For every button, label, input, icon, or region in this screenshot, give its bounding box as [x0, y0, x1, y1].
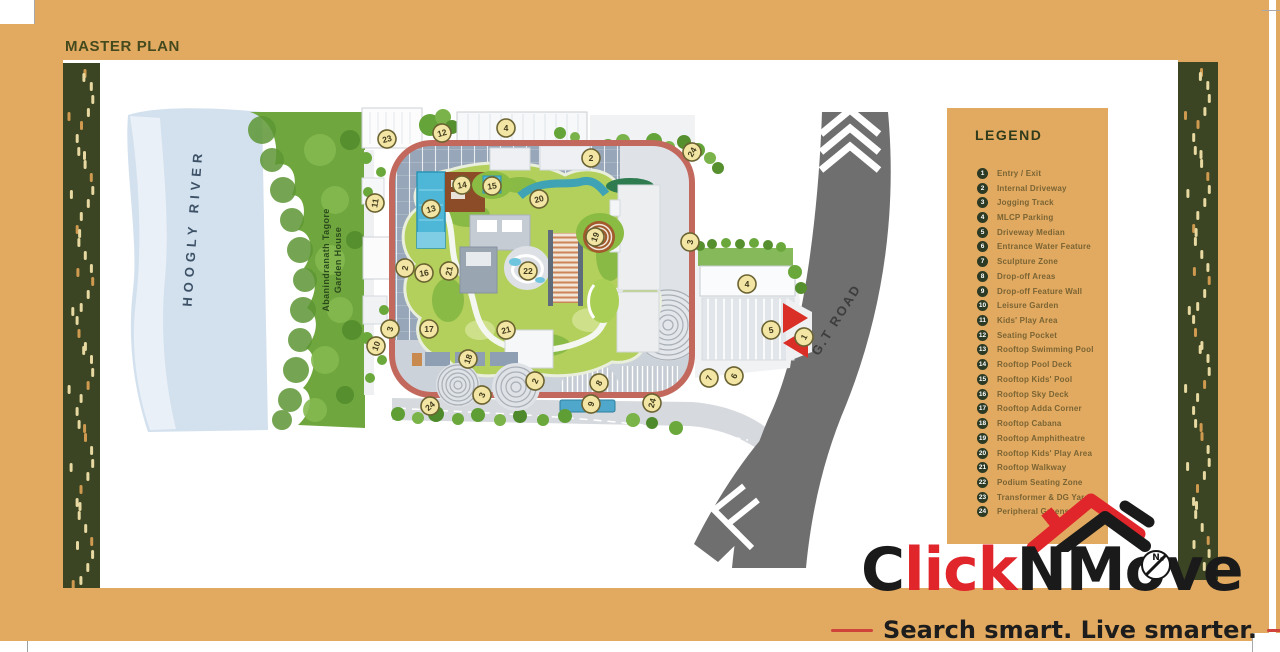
legend-item: 2Internal Driveway: [977, 181, 1104, 196]
legend-item-label: Rooftop Sky Deck: [997, 390, 1069, 399]
legend-item-label: Podium Seating Zone: [997, 478, 1083, 487]
logo-part-c: C: [861, 535, 904, 605]
legend-item: 9Drop-off Feature Wall: [977, 284, 1104, 299]
legend-item: 19Rooftop Amphitheatre: [977, 431, 1104, 446]
tree-dashes-icon: [63, 63, 100, 588]
legend-item: 5Driveway Median: [977, 225, 1104, 240]
legend-item-number: 10: [977, 300, 988, 311]
legend-item-label: Drop-off Feature Wall: [997, 287, 1082, 296]
legend-item-number: 9: [977, 286, 988, 297]
legend-item: 20Rooftop Kids' Play Area: [977, 446, 1104, 461]
legend-item-number: 5: [977, 227, 988, 238]
legend-item-number: 19: [977, 433, 988, 444]
legend-items: 1Entry / Exit2Internal Driveway3Jogging …: [977, 166, 1104, 519]
legend-item-number: 18: [977, 418, 988, 429]
legend-item: 4MLCP Parking: [977, 210, 1104, 225]
legend-item: 16Rooftop Sky Deck: [977, 387, 1104, 402]
legend-item-label: Jogging Track: [997, 198, 1054, 207]
svg-text:14: 14: [456, 179, 467, 191]
legend-item: 22Podium Seating Zone: [977, 475, 1104, 490]
logo-tagline: Search smart. Live smarter.: [883, 616, 1257, 644]
svg-text:15: 15: [486, 180, 497, 192]
legend-item-number: 16: [977, 389, 988, 400]
legend-item-number: 14: [977, 359, 988, 370]
legend-panel: LEGEND 1Entry / Exit2Internal Driveway3J…: [947, 108, 1108, 544]
page-title: MASTER PLAN: [65, 38, 180, 55]
tagline-dash-right: [1267, 629, 1280, 632]
legend-item-label: Rooftop Kids' Pool: [997, 375, 1072, 384]
legend-item-label: Drop-off Areas: [997, 272, 1056, 281]
legend-item-label: Entrance Water Feature: [997, 242, 1091, 251]
legend-item-label: Seating Pocket: [997, 331, 1057, 340]
legend-item: 11Kids' Play Area: [977, 313, 1104, 328]
legend-item-number: 15: [977, 374, 988, 385]
left-walkway-strip: [360, 150, 393, 395]
legend-item-number: 6: [977, 241, 988, 252]
tree-strip-left: [63, 63, 100, 588]
legend-item-label: Leisure Garden: [997, 301, 1059, 310]
legend-item-label: Internal Driveway: [997, 184, 1067, 193]
legend-item: 21Rooftop Walkway: [977, 460, 1104, 475]
legend-item: 7Sculpture Zone: [977, 254, 1104, 269]
legend-item: 15Rooftop Kids' Pool: [977, 372, 1104, 387]
legend-item-number: 7: [977, 256, 988, 267]
plan-marker: 17: [420, 320, 438, 338]
svg-text:22: 22: [523, 266, 533, 276]
svg-text:2: 2: [589, 153, 594, 163]
legend-item: 1Entry / Exit: [977, 166, 1104, 181]
legend-item: 8Drop-off Areas: [977, 269, 1104, 284]
garden-house-label-line1: Abanindranath Tagore: [321, 208, 331, 311]
legend-item-label: Rooftop Cabana: [997, 419, 1062, 428]
compass-n: N: [1152, 553, 1160, 563]
svg-text:21: 21: [443, 265, 455, 276]
podium: [392, 143, 704, 395]
legend-item-label: Sculpture Zone: [997, 257, 1058, 266]
legend-item-label: Rooftop Adda Corner: [997, 404, 1082, 413]
legend-item: 10Leisure Garden: [977, 298, 1104, 313]
legend-item-number: 3: [977, 197, 988, 208]
legend-item: 13Rooftop Swimming Pool: [977, 343, 1104, 358]
legend-item-label: MLCP Parking: [997, 213, 1054, 222]
plan-marker: 4: [497, 119, 515, 137]
legend-item-number: 11: [977, 315, 988, 326]
brand-logo: ClickNMove N Search smart. Live smarter.: [855, 490, 1280, 652]
logo-part-lick: lick: [904, 535, 1017, 605]
svg-text:17: 17: [424, 324, 434, 334]
crop-mark-topleft: [0, 0, 35, 24]
legend-item-number: 21: [977, 462, 988, 473]
legend-item-number: 4: [977, 212, 988, 223]
crop-mark-topright-line: [1262, 10, 1280, 11]
legend-item-label: Rooftop Pool Deck: [997, 360, 1072, 369]
legend-item-label: Rooftop Swimming Pool: [997, 345, 1094, 354]
legend-item-label: Entry / Exit: [997, 169, 1041, 178]
legend-item-number: 8: [977, 271, 988, 282]
legend-item-number: 22: [977, 477, 988, 488]
legend-title: LEGEND: [975, 127, 1042, 143]
compass-icon: N: [1138, 547, 1174, 583]
legend-item: 3Jogging Track: [977, 195, 1104, 210]
svg-text:16: 16: [418, 267, 429, 279]
garden-house-label-line2: Garden House: [333, 227, 343, 293]
mlcp-plaza: [695, 238, 812, 378]
plan-marker: 22: [519, 262, 537, 280]
tagline-dash-left: [831, 629, 873, 632]
logo-tagline-row: Search smart. Live smarter.: [855, 616, 1280, 644]
legend-item-label: Rooftop Kids' Play Area: [997, 449, 1092, 458]
plan-marker: 2: [582, 149, 600, 167]
plan-marker: 4: [738, 275, 756, 293]
legend-item: 17Rooftop Adda Corner: [977, 402, 1104, 417]
legend-item: 18Rooftop Cabana: [977, 416, 1104, 431]
crop-mark-bottom-line: [27, 641, 28, 652]
legend-item: 14Rooftop Pool Deck: [977, 357, 1104, 372]
logo-wordmark: ClickNMove: [861, 540, 1243, 600]
legend-item-label: Kids' Play Area: [997, 316, 1058, 325]
legend-item-label: Rooftop Walkway: [997, 463, 1066, 472]
legend-item: 6Entrance Water Feature: [977, 240, 1104, 255]
svg-text:4: 4: [745, 279, 750, 289]
svg-text:4: 4: [504, 123, 509, 133]
legend-item-number: 13: [977, 344, 988, 355]
legend-item-number: 20: [977, 448, 988, 459]
legend-item-number: 12: [977, 330, 988, 341]
legend-item-label: Driveway Median: [997, 228, 1065, 237]
striped-tower: [553, 233, 578, 303]
legend-item: 12Seating Pocket: [977, 328, 1104, 343]
legend-item-number: 17: [977, 403, 988, 414]
legend-item-label: Rooftop Amphitheatre: [997, 434, 1085, 443]
master-plan-page: MASTER PLAN: [0, 0, 1280, 652]
legend-item-number: 2: [977, 183, 988, 194]
logo-part-nmove: NMove: [1017, 535, 1243, 605]
legend-item-number: 1: [977, 168, 988, 179]
